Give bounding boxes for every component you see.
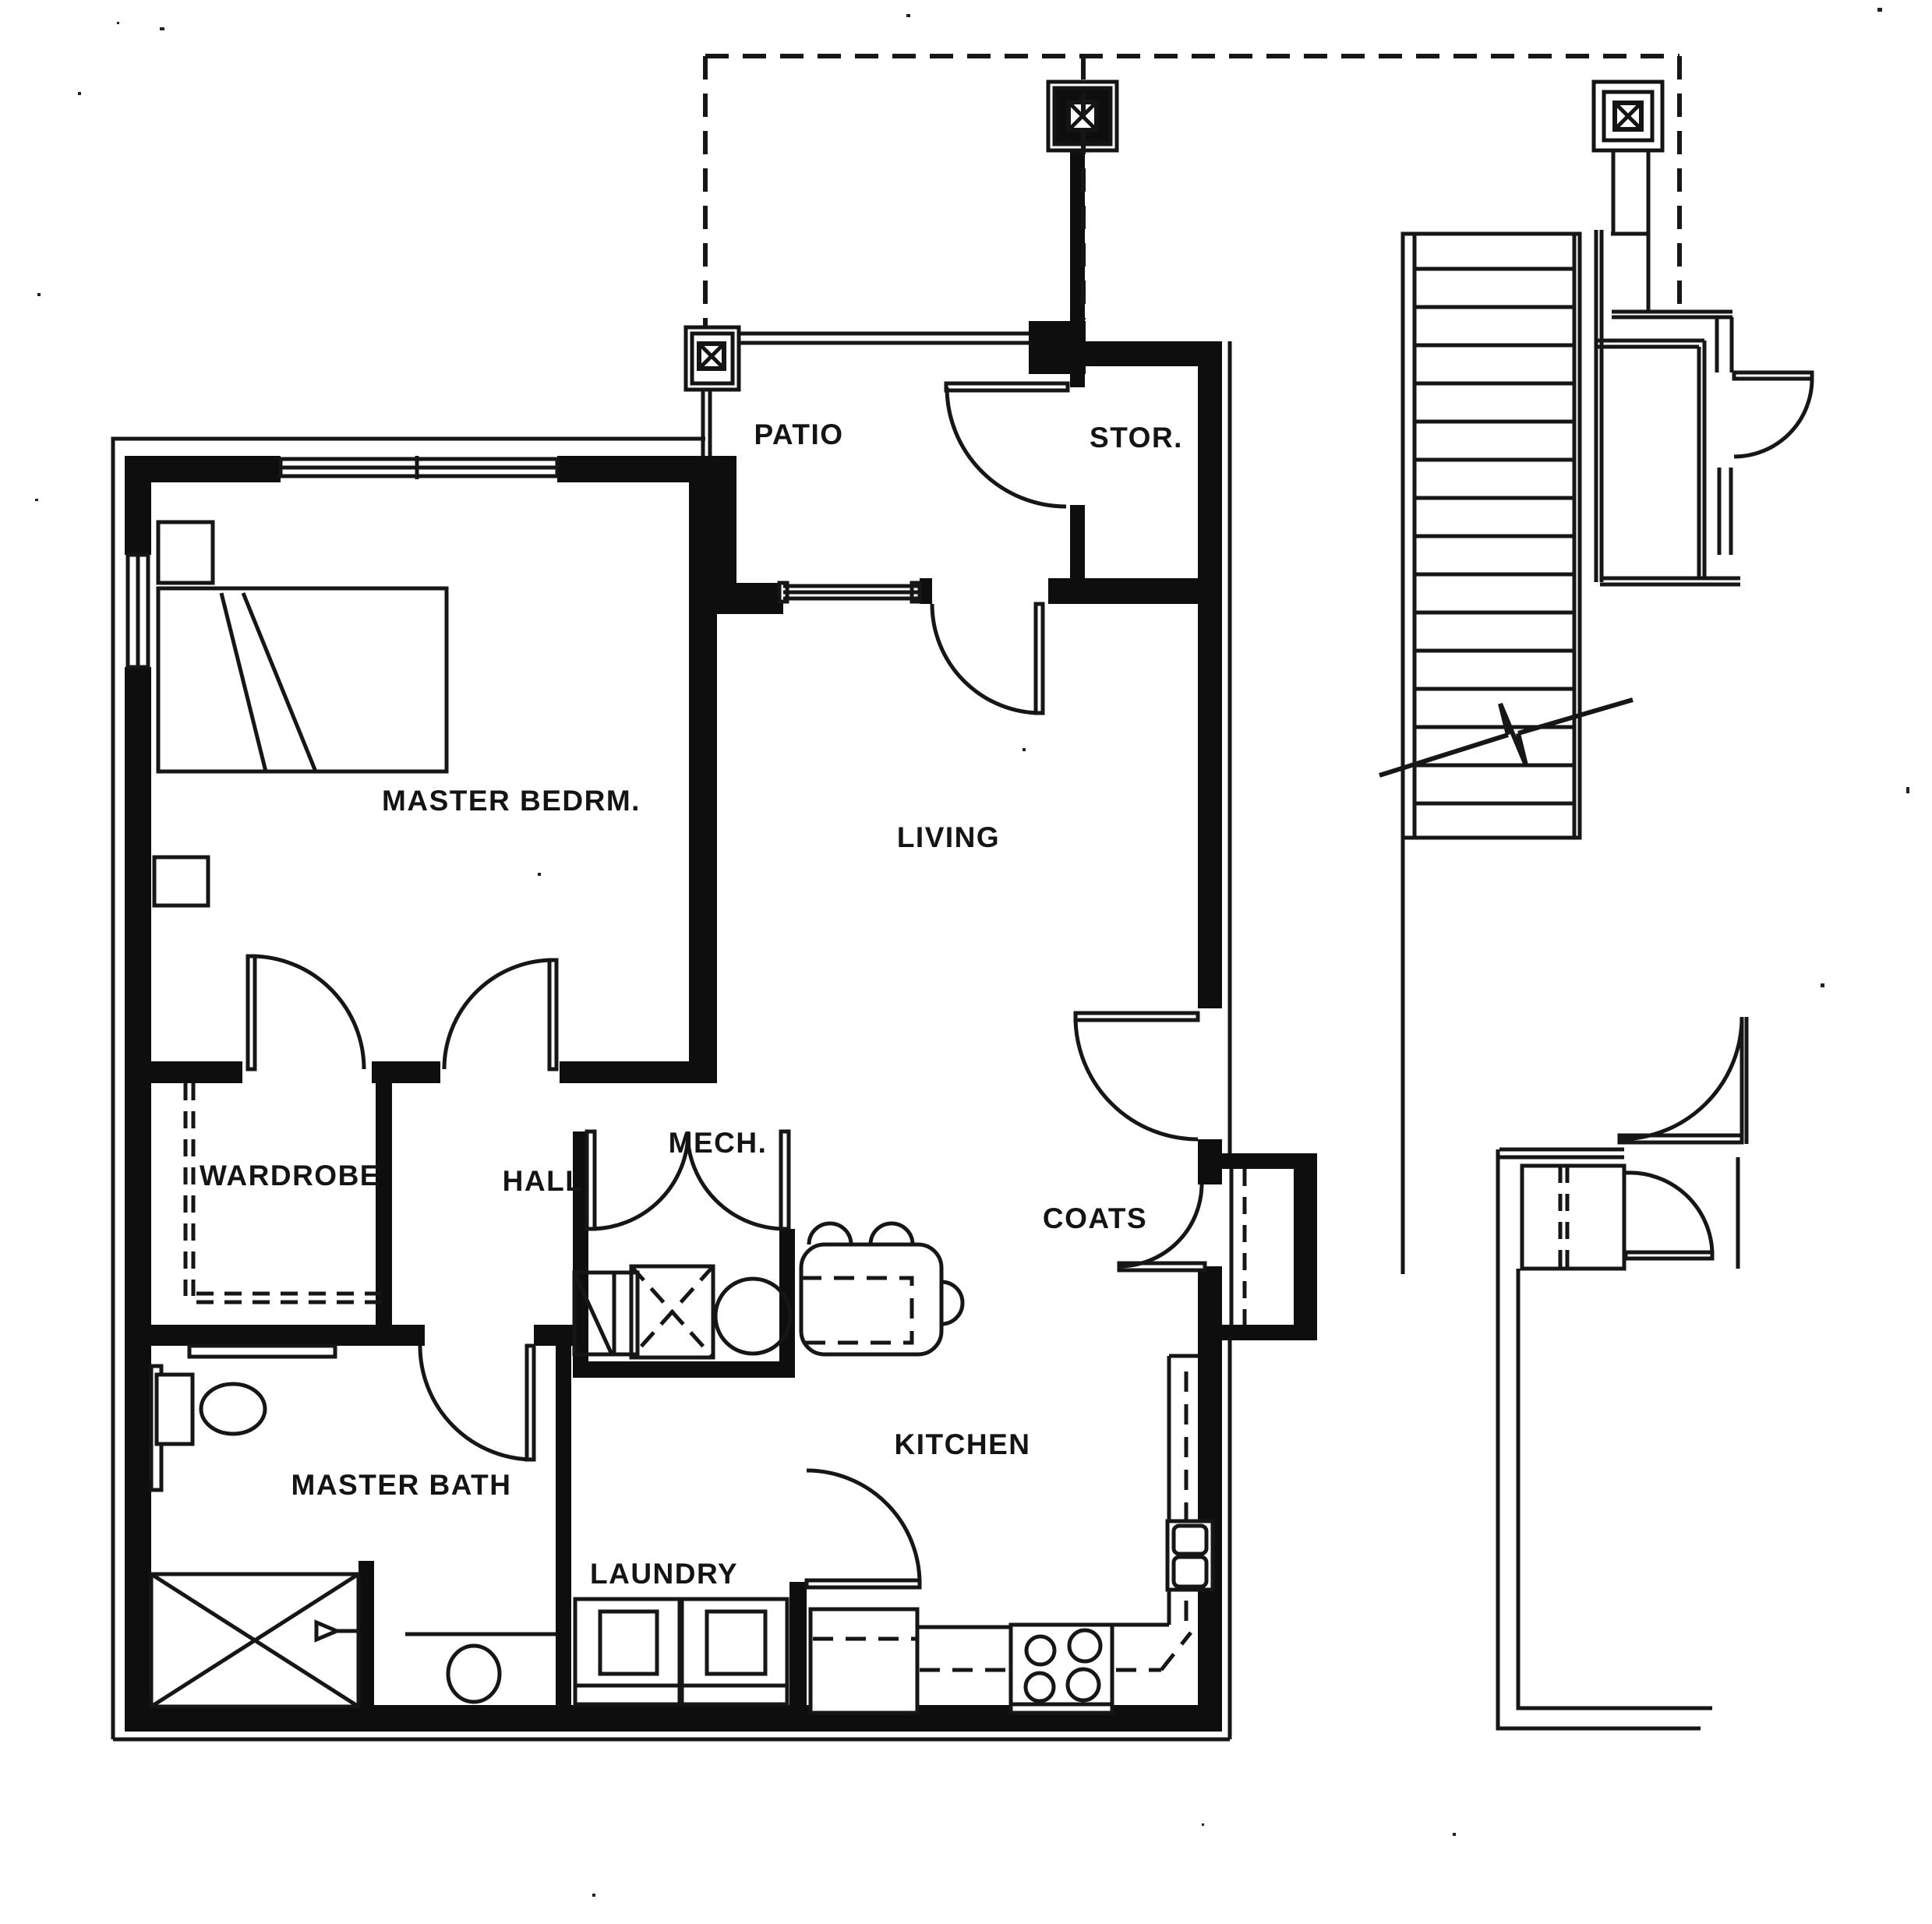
adjacent-closet (1522, 1166, 1712, 1269)
adjacent-unit-lines (1498, 150, 1812, 1728)
patio-column-x-marker-icon (686, 327, 739, 390)
floor-plan-drawing (0, 0, 1932, 1924)
coats-closet-rod-icon (1231, 1169, 1245, 1325)
entry-door-swing-icon (1075, 1013, 1198, 1139)
range-burners-icon (1011, 1625, 1112, 1713)
wardrobe-door-swing-icon (248, 956, 364, 1069)
hall-door-swing-icon (444, 960, 556, 1069)
room-label-patio: PATIO (754, 418, 843, 451)
refrigerator-icon (811, 1609, 917, 1713)
dryer-icon (682, 1599, 787, 1704)
chair-icon (871, 1223, 913, 1244)
wardrobe-closet-rod-icon (185, 1083, 392, 1302)
room-label-storage: STOR. (1090, 422, 1183, 454)
dining-set (801, 1223, 962, 1354)
dining-table-icon (801, 1244, 941, 1354)
chair-icon (941, 1282, 962, 1324)
nightstand-icon (158, 522, 213, 583)
adjacent-l-wall (1498, 1149, 1712, 1728)
storage-door-swing-icon (946, 383, 1068, 507)
room-label-kitchen: KITCHEN (895, 1428, 1031, 1461)
master-bath-fixtures (151, 1346, 556, 1707)
bedroom-left-window-icon (128, 555, 148, 667)
roof-dashed-line-icon (705, 56, 1679, 327)
vanity-shelf-icon (189, 1346, 335, 1357)
room-label-master-bedroom: MASTER BEDRM. (382, 785, 641, 817)
floor-plan-page: MASTER BEDRM. PATIO STOR. LIVING WARDROB… (0, 0, 1932, 1924)
toilet-icon (157, 1375, 265, 1444)
kitchen-sink-icon (1167, 1521, 1213, 1590)
kitchen-door-swing-icon (807, 1470, 920, 1587)
room-label-hall: HALL (503, 1165, 585, 1198)
platform-dashed-x-icon (631, 1266, 713, 1357)
shower-x-icon (151, 1574, 358, 1707)
room-label-wardrobe: WARDROBE (200, 1160, 380, 1192)
adjacent-landing-door-swing-icon (1719, 372, 1812, 555)
room-label-master-bath: MASTER BATH (291, 1469, 511, 1502)
room-label-living: LIVING (897, 821, 1000, 854)
water-heater-icon (715, 1279, 790, 1354)
washer-icon (575, 1599, 680, 1704)
exterior-face-lines (113, 341, 1230, 1739)
nightstand-icon (154, 857, 208, 906)
room-label-mech: MECH. (669, 1127, 768, 1160)
kitchen-fixtures (811, 1356, 1213, 1713)
mech-equipment (574, 1266, 790, 1357)
upper-right-column-x-marker-icon (1594, 82, 1662, 150)
bedroom-top-window-icon (281, 456, 557, 479)
chair-icon (809, 1223, 851, 1244)
stair-run-icon (1403, 234, 1580, 1274)
patio-walls (703, 334, 1029, 456)
room-label-coats: COATS (1043, 1202, 1147, 1235)
room-label-laundry: LAUNDRY (590, 1558, 738, 1590)
bathroom-sink-icon (405, 1634, 556, 1702)
bedroom-furniture (154, 522, 447, 906)
sliding-glass-door-icon (779, 583, 920, 602)
patio-living-door-swing-icon (932, 604, 1043, 713)
bath-door-swing-icon (420, 1346, 534, 1460)
laundry-fixtures (575, 1599, 787, 1704)
table-leaf-dashed (801, 1278, 912, 1343)
